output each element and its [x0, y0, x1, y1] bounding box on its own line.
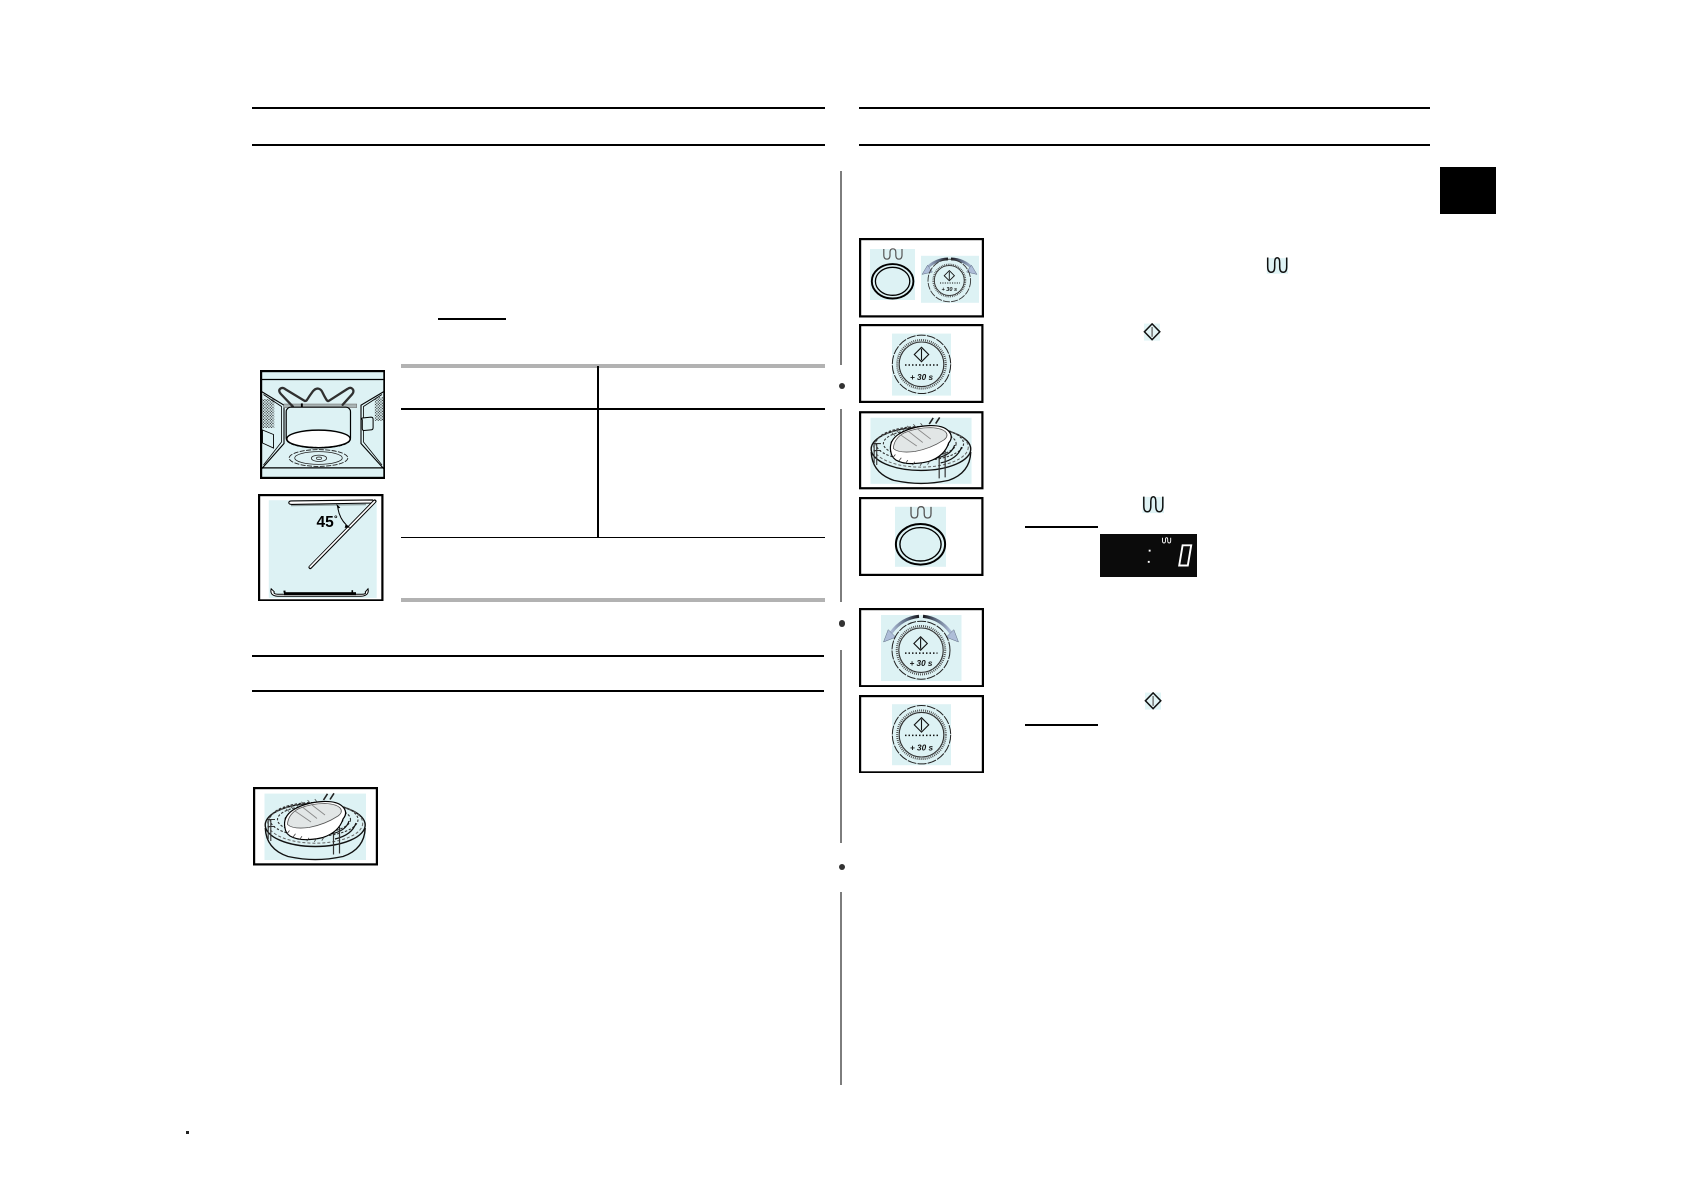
svg-text:+ 30 s: + 30 s	[910, 659, 933, 668]
svg-text:+ 30 s: + 30 s	[910, 373, 933, 382]
svg-text:°: °	[334, 513, 338, 523]
svg-text:+ 30 s: + 30 s	[910, 743, 933, 752]
svg-text:45: 45	[317, 514, 335, 531]
svg-text:+ 30 s: + 30 s	[941, 287, 957, 293]
